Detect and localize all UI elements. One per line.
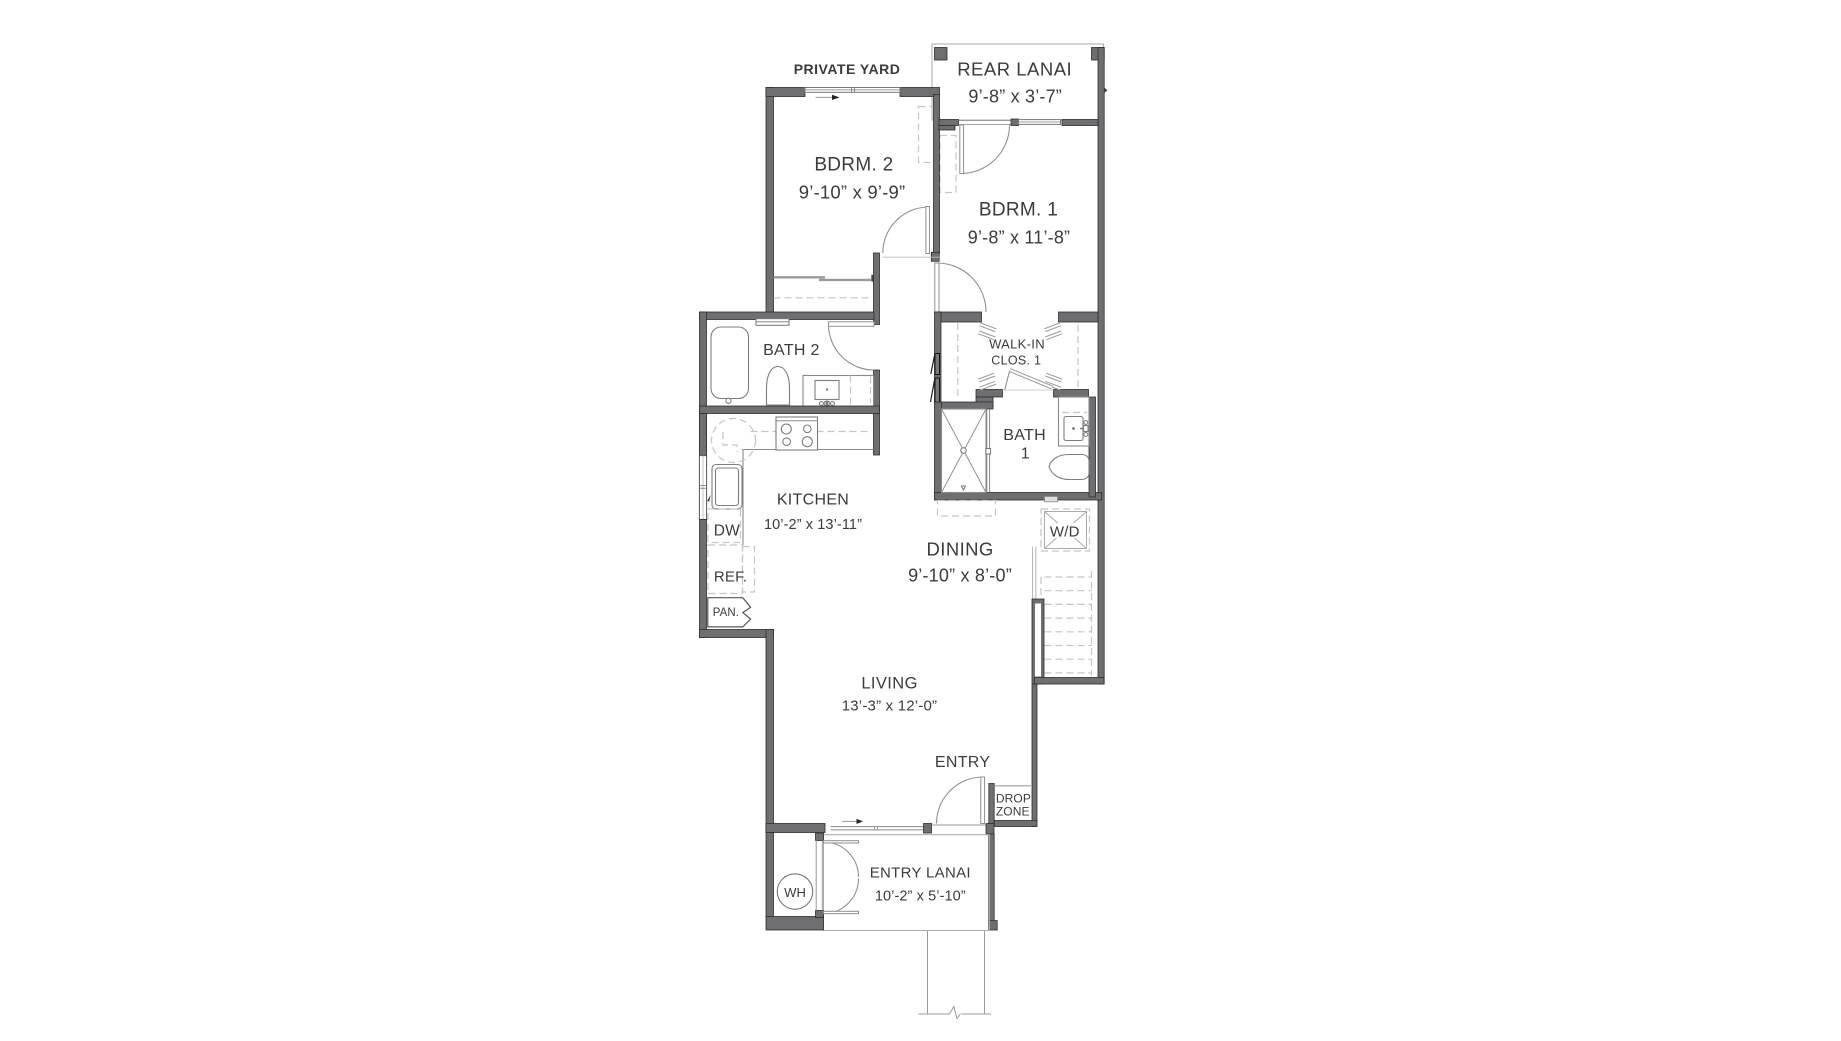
svg-text:BATH: BATH [1003,427,1046,444]
svg-text:9’-8” x 3’-7”: 9’-8” x 3’-7” [968,87,1062,107]
svg-text:KITCHEN: KITCHEN [777,492,849,509]
svg-text:9’-8” x 11’-8”: 9’-8” x 11’-8” [968,227,1071,247]
svg-text:LIVING: LIVING [861,675,918,693]
svg-text:CLOS. 1: CLOS. 1 [991,354,1041,368]
svg-text:DINING: DINING [927,538,994,559]
svg-text:10’-2” x 5’-10”: 10’-2” x 5’-10” [875,889,966,905]
svg-text:BDRM. 2: BDRM. 2 [814,154,893,175]
svg-text:WALK-IN: WALK-IN [989,336,1045,351]
svg-text:W/D: W/D [1050,523,1080,540]
svg-text:1: 1 [1021,446,1030,463]
svg-text:9’-10” x 9’-9”: 9’-10” x 9’-9” [799,182,906,203]
svg-text:BATH 2: BATH 2 [763,342,820,359]
svg-text:PRIVATE YARD: PRIVATE YARD [794,61,901,77]
svg-text:ENTRY LANAI: ENTRY LANAI [870,864,971,881]
svg-text:ENTRY: ENTRY [935,754,990,771]
svg-text:WH: WH [784,885,806,900]
svg-text:10’-2” x 13’-11”: 10’-2” x 13’-11” [764,517,862,533]
svg-text:9’-10” x 8’-0”: 9’-10” x 8’-0” [908,566,1012,586]
svg-text:REAR LANAI: REAR LANAI [957,59,1072,80]
svg-text:ZONE: ZONE [996,804,1030,818]
svg-text:BDRM. 1: BDRM. 1 [979,200,1058,221]
svg-text:13’-3” x 12’-0”: 13’-3” x 12’-0” [842,697,938,714]
svg-text:REF.: REF. [714,569,747,586]
svg-text:PAN.: PAN. [713,607,739,619]
svg-text:DW: DW [714,523,740,540]
